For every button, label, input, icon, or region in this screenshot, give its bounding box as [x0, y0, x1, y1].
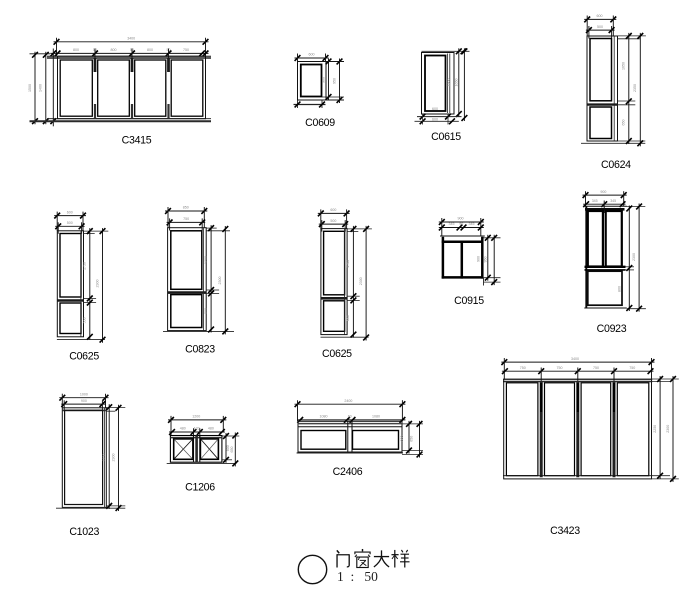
svg-text:750: 750 — [629, 366, 635, 370]
svg-text:C0625: C0625 — [69, 350, 99, 362]
svg-text:C0823: C0823 — [185, 344, 215, 356]
svg-text:2300: 2300 — [218, 277, 222, 285]
svg-text:600: 600 — [432, 117, 438, 121]
svg-text:345: 345 — [592, 199, 598, 203]
svg-text:2250: 2250 — [653, 425, 657, 433]
svg-text:480: 480 — [180, 427, 186, 431]
svg-text:345: 345 — [469, 222, 475, 226]
svg-text:750: 750 — [557, 366, 563, 370]
svg-text:90: 90 — [459, 222, 463, 226]
svg-text:600: 600 — [597, 14, 603, 18]
svg-text:900: 900 — [321, 77, 325, 83]
svg-text:900: 900 — [81, 399, 87, 403]
svg-text:900: 900 — [600, 190, 606, 194]
svg-text:2300: 2300 — [666, 425, 670, 433]
svg-text:550: 550 — [346, 315, 350, 321]
svg-text:600: 600 — [309, 53, 315, 57]
svg-text:950: 950 — [332, 78, 336, 84]
svg-text:500: 500 — [597, 25, 603, 29]
svg-text:1500: 1500 — [447, 79, 451, 87]
svg-text:2300: 2300 — [111, 454, 115, 462]
svg-text:800: 800 — [147, 48, 153, 52]
svg-text:1200: 1200 — [192, 415, 200, 419]
svg-text:2300: 2300 — [632, 253, 636, 261]
svg-text:120: 120 — [194, 427, 200, 431]
svg-text:345: 345 — [449, 222, 455, 226]
svg-text:C1023: C1023 — [69, 526, 99, 538]
svg-text:650: 650 — [622, 120, 626, 126]
svg-text:1650: 1650 — [454, 79, 458, 87]
svg-text:C0923: C0923 — [597, 323, 627, 335]
svg-text:3400: 3400 — [571, 357, 579, 361]
svg-text:2250: 2250 — [102, 454, 106, 462]
svg-text:C0625: C0625 — [322, 348, 352, 360]
svg-text:750: 750 — [183, 48, 189, 52]
svg-text:C3415: C3415 — [122, 135, 152, 147]
svg-text:900: 900 — [477, 256, 481, 262]
svg-text:650: 650 — [230, 447, 234, 453]
svg-text:345: 345 — [610, 199, 616, 203]
svg-text:1650: 1650 — [622, 62, 626, 70]
svg-text:600: 600 — [432, 107, 438, 111]
svg-text:C0615: C0615 — [431, 131, 461, 143]
svg-text:2300: 2300 — [95, 280, 99, 288]
svg-text:1750: 1750 — [346, 260, 350, 268]
svg-text:C1206: C1206 — [185, 482, 215, 494]
svg-text:2350: 2350 — [633, 84, 637, 92]
svg-text:800: 800 — [73, 48, 79, 52]
svg-text:600: 600 — [330, 208, 336, 212]
svg-text:1000: 1000 — [80, 392, 88, 396]
svg-text:60: 60 — [348, 415, 352, 419]
svg-text:750: 750 — [183, 217, 189, 221]
svg-text:2300: 2300 — [359, 277, 363, 285]
svg-text:750: 750 — [593, 366, 599, 370]
svg-text:C0609: C0609 — [305, 117, 335, 129]
svg-text:550: 550 — [83, 317, 87, 323]
svg-text:500: 500 — [330, 219, 336, 223]
svg-text:C0624: C0624 — [601, 159, 631, 171]
svg-text:3400: 3400 — [127, 37, 135, 41]
svg-text:C2406: C2406 — [333, 466, 363, 478]
svg-text:500: 500 — [67, 221, 73, 225]
svg-text:1750: 1750 — [83, 262, 87, 270]
svg-text:2400: 2400 — [344, 399, 352, 403]
svg-text:800: 800 — [618, 286, 622, 292]
svg-text:1500: 1500 — [28, 84, 32, 92]
svg-text:1080: 1080 — [320, 415, 328, 419]
svg-text:650: 650 — [410, 436, 414, 442]
svg-text:1 : 50: 1 : 50 — [337, 569, 378, 584]
svg-text:C3423: C3423 — [550, 525, 580, 537]
svg-text:480: 480 — [208, 427, 214, 431]
svg-text:C0915: C0915 — [454, 295, 484, 307]
svg-text:1200: 1200 — [204, 256, 208, 264]
svg-text:850: 850 — [183, 206, 189, 210]
svg-text:800: 800 — [111, 48, 117, 52]
svg-text:600: 600 — [400, 436, 404, 442]
svg-text:800: 800 — [204, 308, 208, 314]
svg-text:1400: 1400 — [39, 84, 43, 92]
svg-text:600: 600 — [67, 210, 73, 214]
svg-text:1080: 1080 — [372, 415, 380, 419]
svg-text:750: 750 — [520, 366, 526, 370]
svg-text:950: 950 — [484, 257, 488, 263]
svg-text:900: 900 — [458, 217, 464, 221]
